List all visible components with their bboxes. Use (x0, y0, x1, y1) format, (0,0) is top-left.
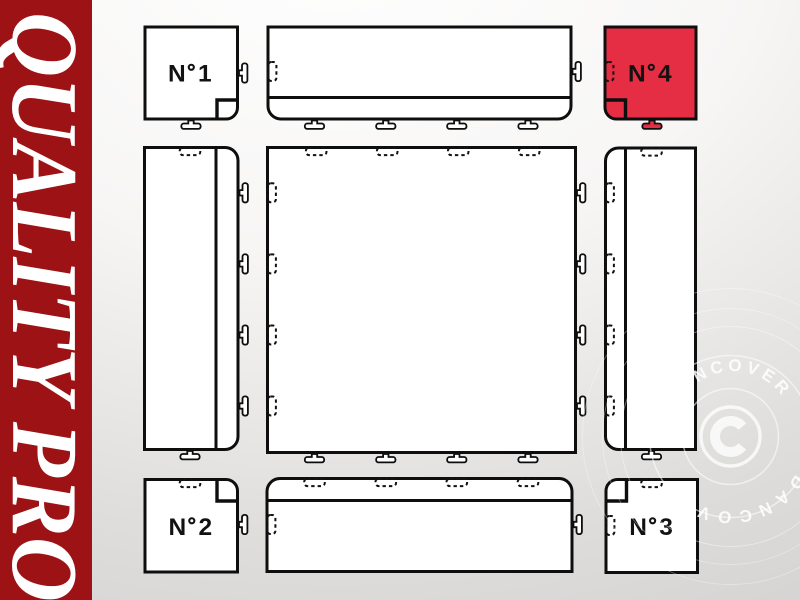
svg-text:QUALITY PRO: QUALITY PRO (0, 12, 96, 600)
svg-text:3: 3 (659, 514, 673, 541)
svg-text:N: N (628, 61, 646, 88)
svg-text:4: 4 (658, 61, 672, 88)
svg-text:N: N (169, 514, 187, 541)
svg-text:1: 1 (198, 61, 212, 88)
svg-text:N: N (168, 61, 186, 88)
svg-text:2: 2 (199, 514, 213, 541)
